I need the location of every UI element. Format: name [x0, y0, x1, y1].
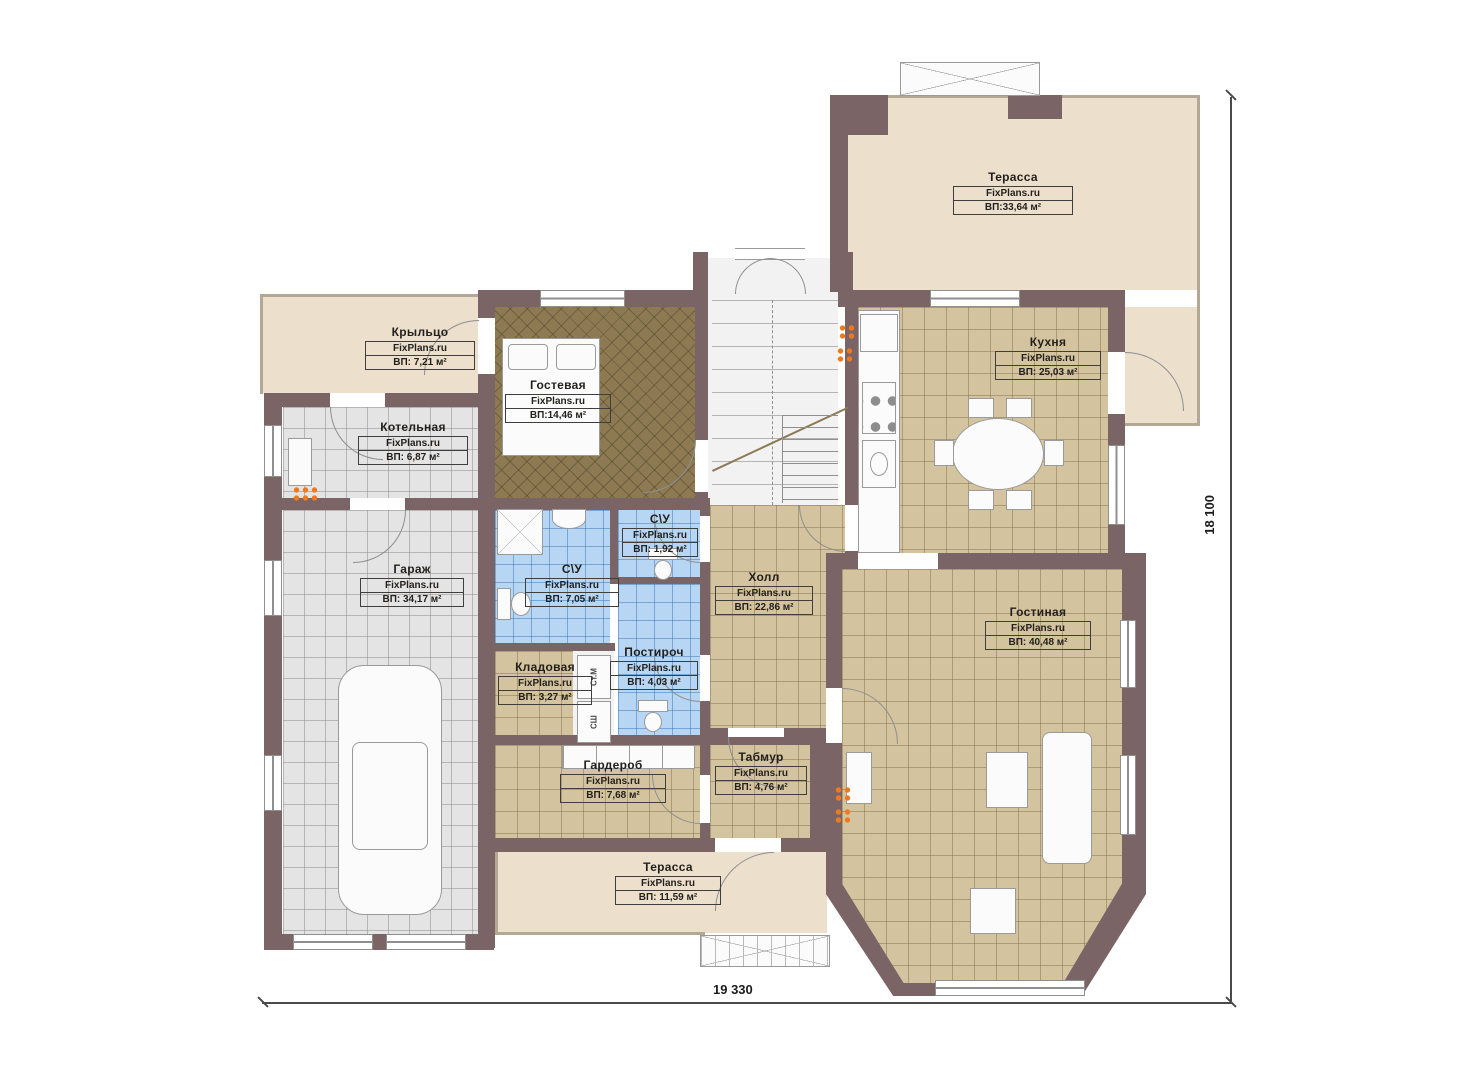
- room-name: Гостиная: [985, 605, 1091, 619]
- wall-mid-vertical: [478, 296, 495, 948]
- dryer: СШ: [577, 701, 611, 743]
- room-name: С\У: [525, 562, 619, 576]
- room-brand: FixPlans.ru: [499, 677, 591, 690]
- railing-terrace-side-bottom: [1124, 423, 1200, 426]
- door-vestibule-terrace: [715, 838, 781, 852]
- room-label-living: Гостиная FixPlans.ru ВП: 40,48 м²: [985, 605, 1091, 650]
- window-garage-2: [264, 755, 282, 811]
- room-brand: FixPlans.ru: [611, 662, 697, 675]
- door-terrace-kitchen: [1108, 352, 1125, 414]
- room-area: ВП:33,64 м²: [954, 200, 1072, 214]
- room-name: Табмур: [715, 750, 807, 764]
- garage-door-2: [386, 934, 466, 950]
- wall-terrace-mid-block: [1008, 95, 1062, 119]
- coffee-table: [986, 752, 1028, 808]
- room-label-garage: Гараж FixPlans.ru ВП: 34,17 м²: [360, 562, 464, 607]
- room-name: Кладовая: [498, 660, 592, 674]
- room-info-box: FixPlans.ru ВП: 1,92 м²: [622, 528, 698, 557]
- wall-wc-large-bottom: [490, 643, 615, 651]
- sofa: [1042, 732, 1092, 864]
- stove: [862, 382, 896, 434]
- railing-terrace-right: [1197, 95, 1200, 426]
- door-kitchen-hall: [845, 505, 858, 551]
- room-brand: FixPlans.ru: [986, 622, 1090, 635]
- room-label-terrace-top: Терасса FixPlans.ru ВП:33,64 м²: [953, 170, 1073, 215]
- room-area: ВП: 34,17 м²: [361, 592, 463, 606]
- room-label-guest: Гостевая FixPlans.ru ВП:14,46 м²: [505, 378, 611, 423]
- opening-kitchen-living: [858, 553, 938, 569]
- window-bay: [935, 980, 1085, 996]
- radiator-marker-living-2: [834, 808, 852, 824]
- room-name: Котельная: [358, 420, 468, 434]
- room-info-box: FixPlans.ru ВП: 40,48 м²: [985, 621, 1091, 650]
- room-label-hall: Холл FixPlans.ru ВП: 22,86 м²: [715, 570, 813, 615]
- room-name: Гардероб: [560, 758, 666, 772]
- dining-chair-6: [1044, 440, 1064, 466]
- dining-chair-5: [934, 440, 954, 466]
- dryer-label: СШ: [590, 715, 599, 729]
- room-info-box: FixPlans.ru ВП: 4,03 м²: [610, 661, 698, 690]
- room-info-box: FixPlans.ru ВП: 22,86 м²: [715, 586, 813, 615]
- wall-vestibule-right: [810, 728, 832, 848]
- room-area: ВП: 4,03 м²: [611, 675, 697, 689]
- railing-porch-top: [260, 294, 482, 297]
- room-brand: FixPlans.ru: [996, 352, 1100, 365]
- room-label-storage: Кладовая FixPlans.ru ВП: 3,27 м²: [498, 660, 592, 705]
- door-boiler-garage: [350, 498, 405, 510]
- dining-chair-3: [968, 490, 994, 510]
- room-info-box: FixPlans.ru ВП: 3,27 м²: [498, 676, 592, 705]
- room-name: Постироч: [610, 645, 698, 659]
- window-living-2: [1120, 755, 1136, 835]
- laundry-sink-tank: [638, 700, 668, 712]
- room-area: ВП: 7,68 м²: [561, 788, 665, 802]
- window-boiler: [264, 425, 282, 477]
- dimension-line-horizontal: [262, 1002, 1232, 1004]
- room-label-boiler: Котельная FixPlans.ru ВП: 6,87 м²: [358, 420, 468, 465]
- railing-terrace-bottom-left: [495, 845, 498, 935]
- door-hall-laundry: [700, 655, 710, 701]
- wc-large-sink: [552, 509, 586, 529]
- door-hall-vestibule: [728, 728, 784, 737]
- terrace-french-door: [900, 62, 1040, 96]
- room-area: ВП:14,46 м²: [506, 408, 610, 422]
- room-label-terrace-bottom: Терасса FixPlans.ru ВП: 11,59 м²: [615, 860, 721, 905]
- room-label-kitchen: Кухня FixPlans.ru ВП: 25,03 м²: [995, 335, 1101, 380]
- door-guest-stair: [695, 440, 708, 492]
- room-brand: FixPlans.ru: [366, 342, 474, 355]
- dimension-line-vertical: [1230, 97, 1232, 1003]
- room-info-box: FixPlans.ru ВП: 25,03 м²: [995, 351, 1101, 380]
- room-name: Гостевая: [505, 378, 611, 392]
- dining-chair-4: [1006, 490, 1032, 510]
- radiator-marker-kitchen-1: [838, 324, 856, 340]
- shower: [497, 509, 543, 555]
- room-name: Терасса: [615, 860, 721, 874]
- radiator-marker-kitchen-2: [836, 347, 854, 363]
- stair-center-line: [772, 300, 773, 505]
- floor-plan: Ст.М СШ Терасса FixPlans.ru ВП:33,64 м² …: [0, 0, 1474, 1080]
- room-brand: FixPlans.ru: [361, 579, 463, 592]
- room-brand: FixPlans.ru: [526, 579, 618, 592]
- room-area: ВП: 3,27 м²: [499, 690, 591, 704]
- room-info-box: FixPlans.ru ВП:33,64 м²: [953, 186, 1073, 215]
- terrace-steps: [700, 935, 830, 967]
- armchair: [970, 888, 1016, 934]
- bed-pillow-1: [508, 344, 548, 370]
- room-area: ВП: 6,87 м²: [359, 450, 467, 464]
- room-area: ВП: 11,59 м²: [616, 890, 720, 904]
- room-area: ВП: 40,48 м²: [986, 635, 1090, 649]
- bed-pillow-2: [556, 344, 596, 370]
- room-name: Крыльцо: [365, 325, 475, 339]
- room-brand: FixPlans.ru: [954, 187, 1072, 200]
- room-label-vestibule: Табмур FixPlans.ru ВП: 4,76 м²: [715, 750, 807, 795]
- window-kitchen-right: [1108, 445, 1125, 525]
- door-vestibule-wardrobe: [700, 775, 710, 823]
- window-garage-1: [264, 560, 282, 616]
- room-brand: FixPlans.ru: [616, 877, 720, 890]
- door-hall-living: [826, 688, 842, 743]
- dining-chair-1: [968, 398, 994, 418]
- window-guest: [540, 290, 625, 307]
- stair-treads-lower: [782, 415, 838, 503]
- room-name: Терасса: [953, 170, 1073, 184]
- room-name: Гараж: [360, 562, 464, 576]
- railing-terrace-bottom-edge: [495, 932, 705, 935]
- room-info-box: FixPlans.ru ВП: 7,21 м²: [365, 341, 475, 370]
- wall-wc-partition-h: [610, 577, 700, 584]
- dining-table: [952, 418, 1044, 490]
- railing-porch-left: [260, 294, 263, 394]
- kitchen-sink-bowl: [870, 452, 888, 476]
- room-area: ВП: 7,05 м²: [526, 592, 618, 606]
- wall-entry-left: [693, 252, 708, 297]
- wall-terrace-corner-block: [830, 95, 888, 135]
- wall-house-bottom: [494, 838, 840, 852]
- room-info-box: FixPlans.ru ВП: 6,87 м²: [358, 436, 468, 465]
- laundry-sink-bowl: [644, 712, 662, 732]
- room-brand: FixPlans.ru: [623, 529, 697, 542]
- room-info-box: FixPlans.ru ВП:14,46 м²: [505, 394, 611, 423]
- room-brand: FixPlans.ru: [359, 437, 467, 450]
- room-info-box: FixPlans.ru ВП: 34,17 м²: [360, 578, 464, 607]
- room-info-box: FixPlans.ru ВП: 7,68 м²: [560, 774, 666, 803]
- dimension-label-vertical: 18 100: [1202, 495, 1217, 535]
- boiler-unit: [288, 438, 312, 486]
- room-brand: FixPlans.ru: [716, 767, 806, 780]
- window-kitchen: [930, 290, 1020, 307]
- garage-door-1: [293, 934, 373, 950]
- room-label-wc-large: С\У FixPlans.ru ВП: 7,05 м²: [525, 562, 619, 607]
- fridge: [860, 314, 898, 352]
- room-label-wardrobe: Гардероб FixPlans.ru ВП: 7,68 м²: [560, 758, 666, 803]
- room-label-porch: Крыльцо FixPlans.ru ВП: 7,21 м²: [365, 325, 475, 370]
- room-info-box: FixPlans.ru ВП: 7,05 м²: [525, 578, 619, 607]
- wall-kitchen-right: [1108, 290, 1125, 573]
- room-name: С\У: [622, 512, 698, 526]
- room-area: ВП: 25,03 м²: [996, 365, 1100, 379]
- room-label-laundry: Постироч FixPlans.ru ВП: 4,03 м²: [610, 645, 698, 690]
- wc-small-toilet-bowl: [654, 560, 672, 580]
- room-info-box: FixPlans.ru ВП: 4,76 м²: [715, 766, 807, 795]
- room-area: ВП: 4,76 м²: [716, 780, 806, 794]
- window-living-1: [1120, 620, 1136, 688]
- car-roof: [352, 742, 428, 850]
- room-label-wc-small: С\У FixPlans.ru ВП: 1,92 м²: [622, 512, 698, 557]
- room-name: Холл: [715, 570, 813, 584]
- door-hall-wc-small: [700, 516, 710, 562]
- room-area: ВП: 22,86 м²: [716, 600, 812, 614]
- room-brand: FixPlans.ru: [561, 775, 665, 788]
- dimension-label-horizontal: 19 330: [713, 982, 753, 997]
- room-name: Кухня: [995, 335, 1101, 349]
- radiator-marker-living-1: [834, 786, 852, 802]
- room-info-box: FixPlans.ru ВП: 11,59 м²: [615, 876, 721, 905]
- door-porch-entry: [478, 318, 495, 374]
- radiator-marker-boiler: [292, 486, 318, 502]
- door-porch-boiler: [330, 393, 385, 407]
- room-brand: FixPlans.ru: [506, 395, 610, 408]
- wc-large-toilet-tank: [497, 588, 511, 620]
- room-brand: FixPlans.ru: [716, 587, 812, 600]
- dining-chair-2: [1006, 398, 1032, 418]
- room-area: ВП: 1,92 м²: [623, 542, 697, 556]
- room-area: ВП: 7,21 м²: [366, 355, 474, 369]
